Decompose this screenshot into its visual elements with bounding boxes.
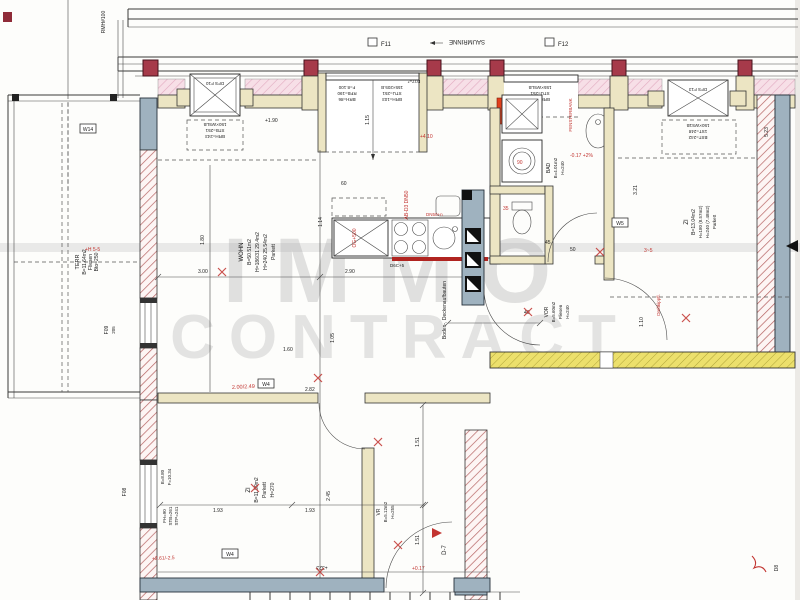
svg-text:205: 205: [111, 326, 116, 334]
svg-text:D8: D8: [774, 565, 780, 572]
corner-mark: [3, 12, 12, 22]
svg-text:H=240 (7.48m2): H=240 (7.48m2): [705, 205, 710, 238]
svg-text:2.45: 2.45: [326, 491, 332, 501]
skylight1-id: DFS F10: [206, 81, 225, 86]
svg-text:STP=241: STP=241: [174, 506, 179, 525]
red-note-261: +2.61/-2.5: [152, 555, 175, 562]
svg-text:BST=242: BST=242: [688, 135, 707, 140]
svg-text:W5: W5: [616, 221, 624, 227]
svg-text:1.93: 1.93: [213, 508, 223, 514]
svg-text:1.14: 1.14: [318, 217, 324, 227]
svg-text:Parkett: Parkett: [271, 243, 277, 259]
svg-text:155×WSLB: 155×WSLB: [529, 85, 552, 90]
svg-text:1ST=248: 1ST=248: [688, 129, 707, 134]
rmh-label: RMH#100: [101, 11, 107, 34]
svg-text:150×WS1B: 150×WS1B: [687, 123, 710, 128]
floor-buildup-note: Boden-, Deckenaufbauten: [442, 281, 448, 339]
svg-text:150×WSLB: 150×WSLB: [204, 122, 227, 127]
svg-text:BRH=86: BRH=86: [338, 97, 356, 102]
svg-text:Fliesen: Fliesen: [558, 304, 563, 319]
window-f08: [140, 460, 157, 528]
svg-text:35: 35: [503, 206, 509, 212]
drain-note: AB-D3 DN50: [404, 190, 410, 219]
f12-symbol: [545, 38, 554, 46]
f11-symbol: [368, 38, 377, 46]
svg-text:1.10: 1.10: [639, 317, 645, 327]
svg-text:FH=90: FH=90: [162, 509, 167, 523]
fensterbank-note: FENSTERBANK: [568, 98, 573, 131]
svg-text:1.51: 1.51: [415, 535, 421, 545]
svg-text:W4: W4: [262, 382, 270, 388]
f11-label: F11: [381, 42, 392, 48]
bath-name: BAD: [546, 162, 552, 173]
skylight3-id: DFS F13: [689, 87, 708, 92]
terrace-name: TERR: [75, 254, 81, 269]
svg-text:Parkett: Parkett: [262, 481, 268, 497]
svg-text:+1.90: +1.90: [265, 118, 278, 124]
wall-tag-w14: W14: [83, 127, 94, 133]
f12-label: F12: [558, 42, 569, 48]
level-note: +H 5-5: [85, 247, 100, 253]
kitchen-sink: [334, 220, 388, 256]
svg-text:Parkett: Parkett: [712, 214, 717, 229]
living-room-name: WOHN: [239, 243, 245, 262]
svg-text:B=4.01m2: B=4.01m2: [553, 157, 558, 178]
svg-text:F=8.100: F=8.100: [338, 85, 355, 90]
dormer-window: F=8.100 RFB=190 BRH=86 155×205.B STU=251…: [318, 73, 427, 160]
svg-text:1.15: 1.15: [365, 115, 371, 125]
svg-text:W4: W4: [226, 552, 234, 558]
washing-machine: 90: [502, 140, 542, 182]
f08-label: F08: [122, 487, 128, 496]
red-level-017: -0.17 +2%: [570, 153, 593, 159]
svg-text:B=5.12m2: B=5.12m2: [383, 501, 388, 522]
svg-text:3.00: 3.00: [198, 269, 208, 275]
f09-label: F09: [104, 325, 110, 334]
door-d7-label: D-7: [442, 545, 448, 555]
hall-name: VOR: [544, 306, 550, 317]
svg-text:B=50.51m2: B=50.51m2: [247, 239, 253, 265]
svg-text:50: 50: [570, 247, 576, 253]
floorplan-scan: IMMO CONTRACT RMH#100 F11 F12 SAUMRINNE: [0, 0, 800, 600]
svg-text:3.21: 3.21: [633, 185, 639, 195]
svg-text:D6C+5: D6C+5: [390, 263, 405, 268]
svg-text:3~5: 3~5: [644, 248, 653, 254]
red-level-410: +4.10: [420, 134, 433, 140]
svg-text:2.90: 2.90: [345, 269, 355, 275]
svg-text:D17=*: D17=*: [407, 79, 420, 84]
shower: [502, 95, 542, 133]
svg-text:45: 45: [545, 240, 551, 246]
svg-text:60: 60: [341, 181, 347, 187]
svg-text:H=255: H=255: [390, 505, 395, 519]
floorplan-canvas: IMMO CONTRACT RMH#100 F11 F12 SAUMRINNE: [0, 0, 800, 600]
svg-text:2.82: 2.82: [305, 387, 315, 393]
svg-text:OG+500: OG+500: [352, 228, 358, 247]
svg-text:BRH=243: BRH=243: [205, 134, 225, 139]
svg-text:1.05: 1.05: [330, 333, 336, 343]
window-f09: [140, 298, 157, 348]
svg-text:H=240: H=240: [560, 161, 565, 175]
svg-text:F=10.34: F=10.34: [167, 468, 172, 485]
svg-text:H=180 (8.57m2): H=180 (8.57m2): [698, 205, 703, 238]
scan-edge: [795, 0, 800, 600]
svg-text:B=13.04m2: B=13.04m2: [691, 209, 697, 235]
svg-text:1.60: 1.60: [283, 347, 293, 353]
svg-text:155×205.B: 155×205.B: [381, 85, 403, 90]
svg-text:1.93: 1.93: [305, 508, 315, 514]
svg-text:STU=251: STU=251: [382, 91, 402, 96]
svg-text:Bto=250: Bto=250: [94, 252, 100, 271]
svg-text:1.80: 1.80: [200, 235, 206, 245]
svg-text:B=5.60m2: B=5.60m2: [551, 301, 556, 322]
svg-text:B=8.80: B=8.80: [160, 469, 165, 484]
vr-name: VR: [376, 508, 382, 515]
svg-text:H=240 25.54m2: H=240 25.54m2: [263, 234, 269, 270]
saumrinne-label: SAUMRINNE: [449, 38, 485, 44]
svg-text:5.23: 5.23: [764, 127, 770, 137]
svg-text:H=240: H=240: [565, 305, 570, 319]
red-note-249: 2.00/2.49: [232, 384, 255, 391]
svg-text:Drehkippfl.: Drehkippfl.: [656, 294, 661, 316]
svg-text:DN50+n: DN50+n: [426, 212, 443, 217]
svg-text:1.51: 1.51: [415, 437, 421, 447]
bedroom-east-name: ZI: [684, 219, 690, 225]
svg-text:RFB=190: RFB=190: [337, 91, 357, 96]
svg-text:90: 90: [517, 160, 523, 166]
svg-text:H=186/31 29.4m2: H=186/31 29.4m2: [255, 232, 261, 272]
svg-text:STB=251: STB=251: [205, 128, 224, 133]
svg-text:STB=261: STB=261: [168, 506, 173, 525]
svg-text:BRH=103: BRH=103: [382, 97, 402, 102]
svg-text:H=270: H=270: [270, 482, 276, 497]
